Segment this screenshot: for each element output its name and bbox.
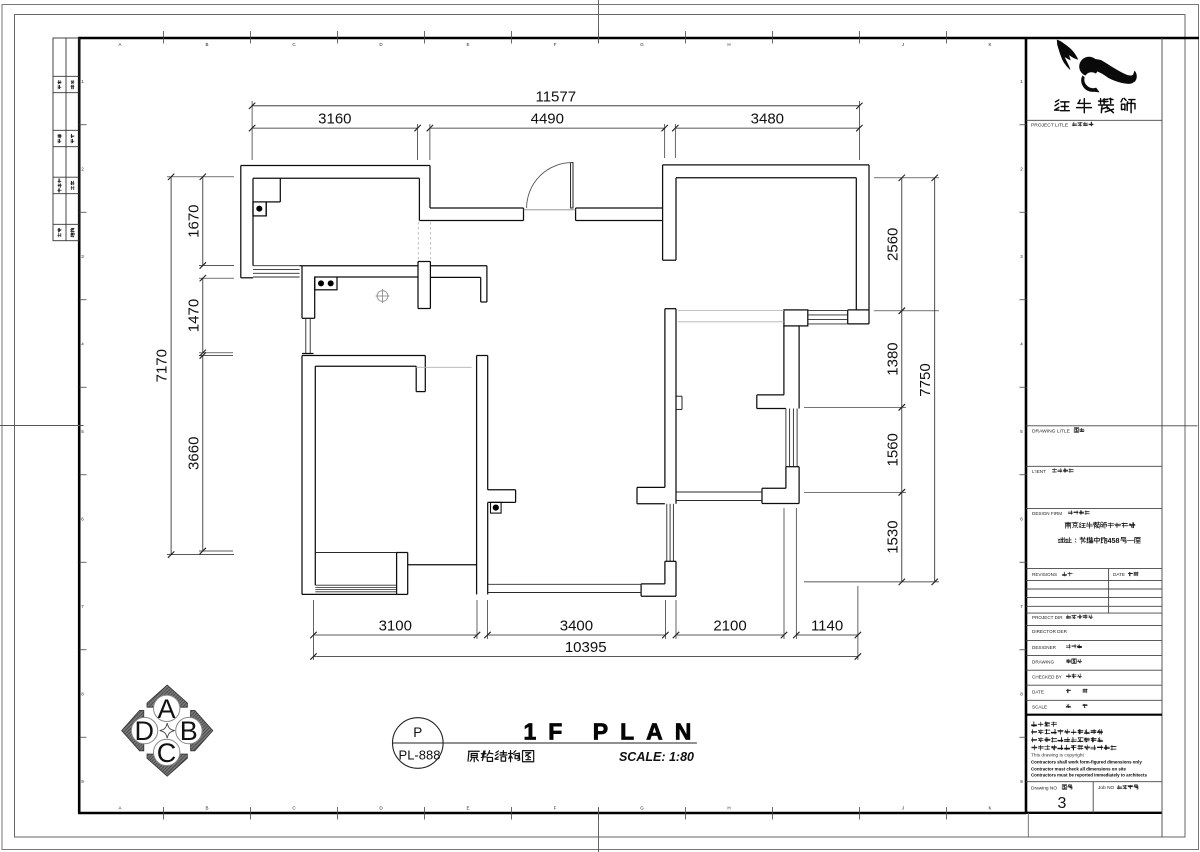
svg-text:1470: 1470: [185, 299, 202, 332]
svg-text:K: K: [988, 806, 991, 811]
svg-text:DATE: DATE: [1032, 689, 1044, 694]
svg-text:7750: 7750: [917, 363, 934, 396]
svg-text:PL-888: PL-888: [399, 748, 441, 763]
svg-text:1140: 1140: [811, 618, 843, 635]
svg-text:K: K: [988, 42, 991, 47]
svg-text:1560: 1560: [884, 433, 901, 466]
svg-text:L'IENT: L'IENT: [1032, 469, 1046, 474]
svg-text:10395: 10395: [565, 639, 607, 656]
svg-text:3160: 3160: [318, 111, 351, 128]
svg-text:CHECKED BY: CHECKED BY: [1032, 674, 1062, 679]
svg-text:J: J: [902, 42, 904, 47]
svg-text:H: H: [727, 42, 730, 47]
svg-text:D: D: [135, 716, 155, 746]
svg-text:F: F: [554, 42, 557, 47]
svg-text:B: B: [205, 42, 208, 47]
svg-text:4490: 4490: [531, 111, 564, 128]
svg-text:458: 458: [1108, 536, 1120, 545]
svg-text:G: G: [640, 806, 644, 811]
svg-text:A: A: [118, 42, 121, 47]
svg-text:PROJECT LITLE: PROJECT LITLE: [1031, 123, 1069, 129]
svg-text:7170: 7170: [154, 349, 171, 382]
svg-text:1670: 1670: [185, 204, 202, 237]
svg-text:B: B: [180, 716, 198, 746]
svg-text:3480: 3480: [751, 111, 784, 128]
svg-text:Job NO: Job NO: [1098, 785, 1115, 791]
svg-text:Drawing NO: Drawing NO: [1031, 786, 1057, 792]
svg-text:1530: 1530: [884, 520, 901, 553]
svg-text:3100: 3100: [379, 618, 412, 635]
svg-text:2560: 2560: [884, 228, 901, 261]
svg-text:P: P: [413, 725, 422, 740]
svg-text:DRAWING LITLE: DRAWING LITLE: [1032, 429, 1071, 435]
svg-text:This drawing is copyright: This drawing is copyright: [1031, 753, 1084, 759]
svg-text:1F PLAN: 1F PLAN: [524, 719, 704, 745]
svg-text:DRAWING: DRAWING: [1032, 660, 1054, 665]
svg-text:DATE: DATE: [1113, 572, 1125, 577]
svg-text:2100: 2100: [713, 618, 746, 635]
svg-text:Contractors must be reported i: Contractors must be reported immediately…: [1031, 773, 1147, 778]
svg-text:H: H: [727, 806, 730, 811]
svg-text:C: C: [157, 738, 177, 768]
svg-text:A: A: [118, 806, 121, 811]
svg-text:3660: 3660: [185, 437, 202, 470]
svg-text:3400: 3400: [560, 618, 593, 635]
svg-text:3: 3: [1058, 795, 1067, 812]
svg-text:J: J: [902, 806, 904, 811]
svg-text:Contractor must check all dime: Contractor must check all dimensions on …: [1031, 766, 1126, 771]
svg-text:A: A: [157, 694, 175, 724]
svg-text:1380: 1380: [884, 342, 901, 375]
svg-text:SCALE: SCALE: [1032, 704, 1047, 709]
svg-text:E: E: [466, 806, 469, 811]
svg-text:B: B: [205, 806, 208, 811]
svg-text:Contractors shall work form-fi: Contractors shall work form-figured dime…: [1031, 759, 1142, 764]
svg-text:REVISIONS: REVISIONS: [1032, 572, 1057, 577]
svg-text:F: F: [554, 806, 557, 811]
svg-text:DESIGNER: DESIGNER: [1032, 645, 1057, 650]
svg-text:E: E: [466, 42, 469, 47]
svg-text:G: G: [640, 42, 644, 47]
svg-text:PROJECT DIR: PROJECT DIR: [1032, 615, 1063, 620]
svg-text:SCALE: 1:80: SCALE: 1:80: [619, 750, 694, 764]
svg-text:11577: 11577: [535, 88, 576, 105]
svg-text:DESIGN FIRM: DESIGN FIRM: [1032, 511, 1062, 516]
svg-text:DIRECTOR DER: DIRECTOR DER: [1032, 629, 1068, 634]
